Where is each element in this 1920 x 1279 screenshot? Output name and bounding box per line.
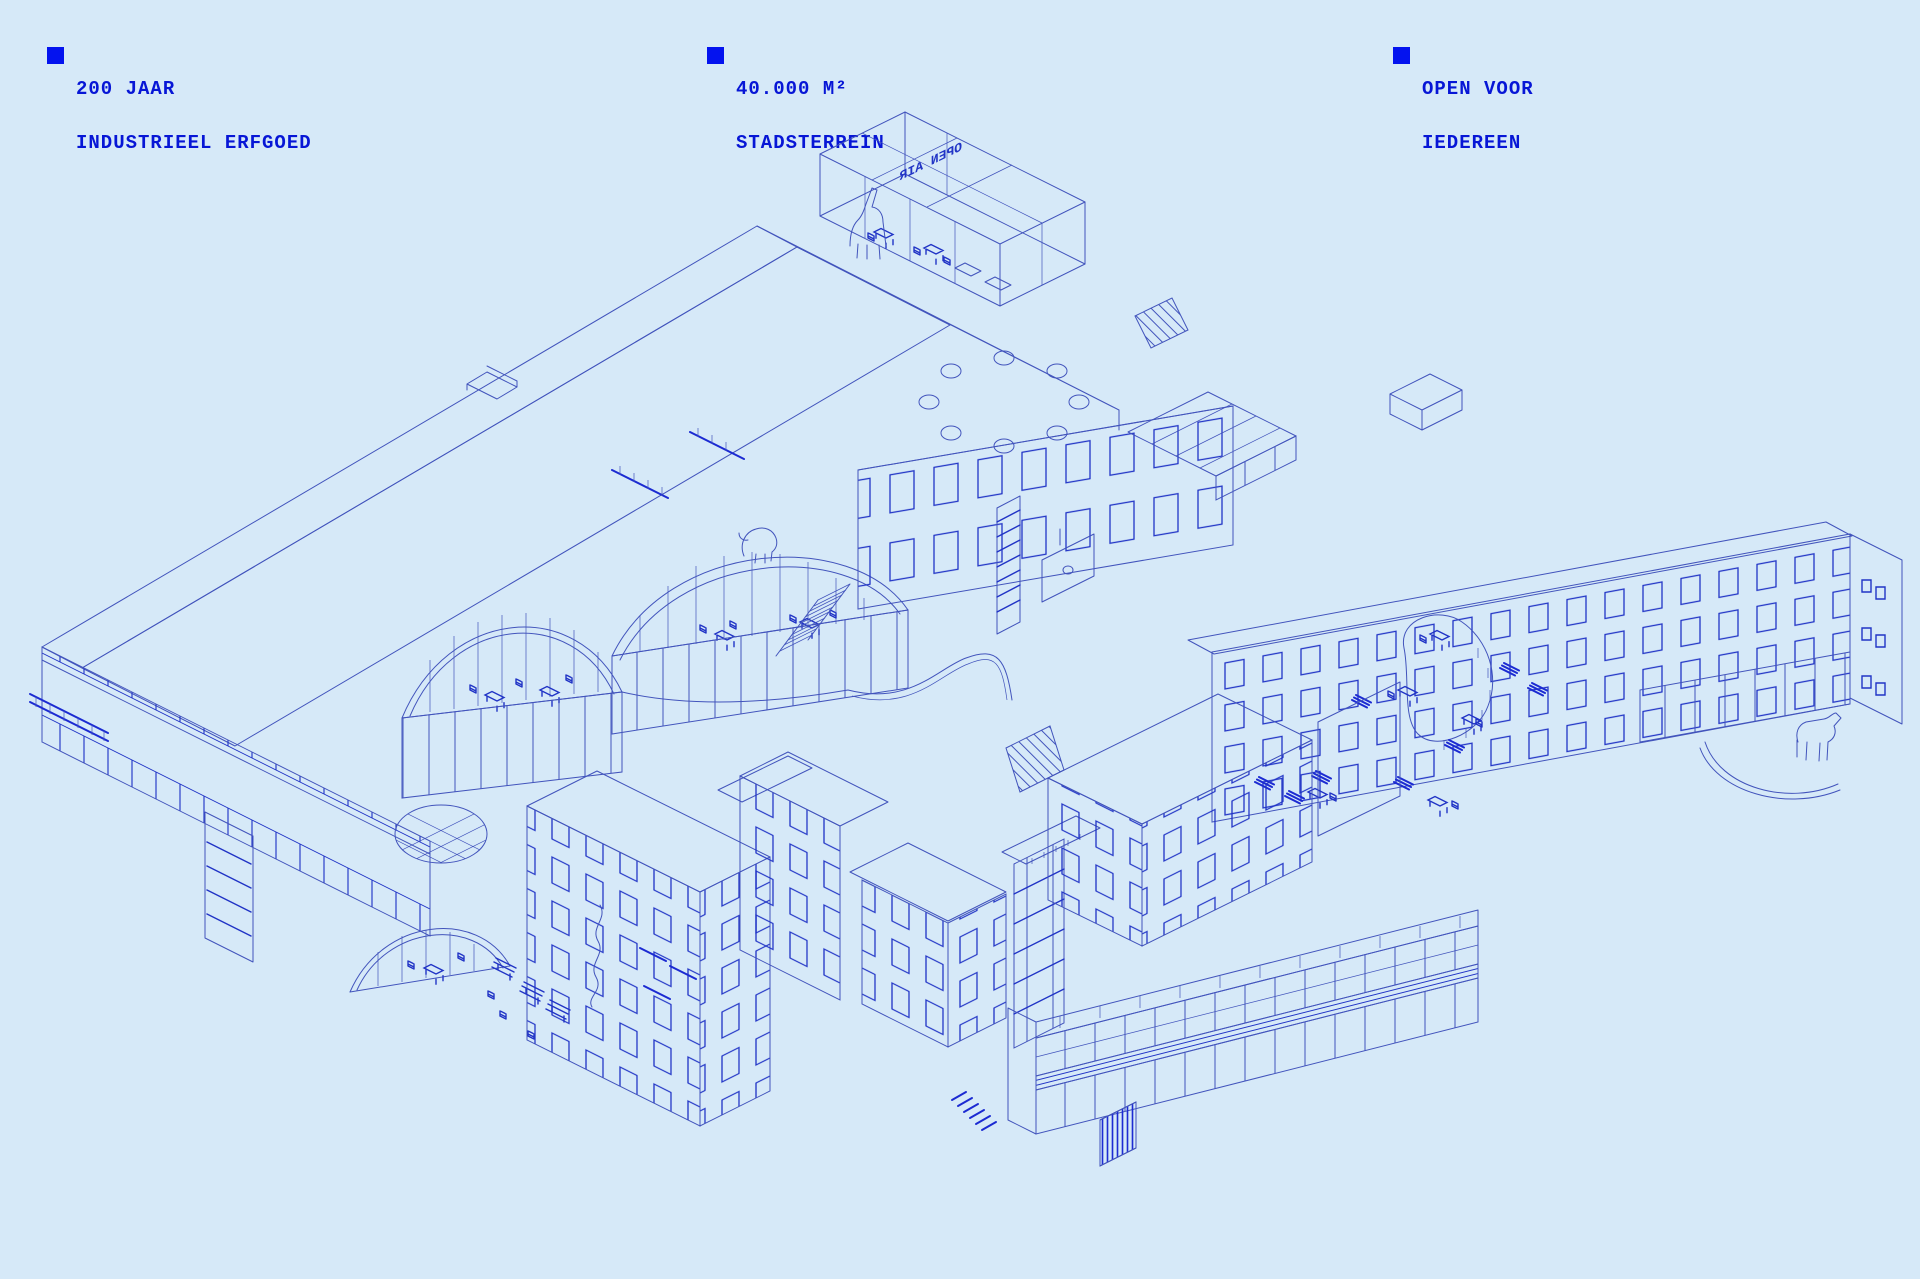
elephant-sculpture (739, 528, 777, 563)
roof-hut-hatched (1135, 298, 1188, 348)
horse-statue (1797, 713, 1841, 761)
site-poster: 200 JAAR INDUSTRIEEL ERFGOED 40.000 M² S… (0, 0, 1920, 1279)
rooftop-pavilion: OPEN AIR (820, 112, 1085, 306)
roof-hut (1390, 374, 1462, 430)
site-axonometric-drawing: OPEN AIR (0, 0, 1920, 1279)
roof-railings (612, 428, 744, 498)
cutaway-dome-medium (402, 613, 622, 798)
cutaway-dome-small (350, 929, 510, 992)
rooftop-sign-text: OPEN AIR (899, 141, 962, 186)
gallery-stairs (952, 1092, 996, 1130)
